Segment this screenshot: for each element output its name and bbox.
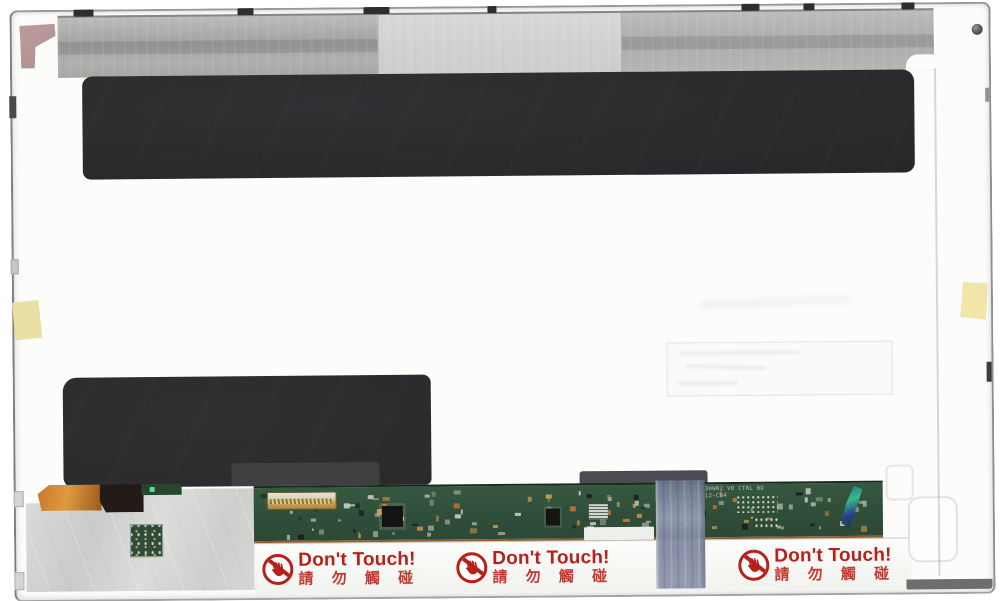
warning-text: Don't Touch! 請 勿 觸 碰 (492, 548, 610, 586)
pcb-component (312, 528, 315, 531)
flex-cable-connector (100, 484, 144, 512)
pcb-component (412, 523, 418, 526)
pcb-component (810, 502, 815, 506)
pcb-component (607, 495, 612, 497)
pcb-component (373, 531, 379, 537)
pcb-board: B173HW02 V0 CTRL BD 17B12-C04 (254, 481, 883, 545)
product-photo-lcd-panel: B173HW02 V0 CTRL BD 17B12-C04 Don't Touc… (0, 0, 1000, 601)
warning-text-zh: 請 勿 觸 碰 (298, 569, 416, 587)
warning-text-zh: 請 勿 觸 碰 (774, 565, 892, 583)
pcb-component (572, 526, 576, 529)
pcb-component (353, 529, 356, 533)
bottom-right-edge-strip (906, 579, 992, 590)
pcb-component (587, 494, 591, 499)
pcb-component (383, 497, 390, 501)
pcb-component (742, 524, 748, 530)
pcb-component (311, 519, 316, 522)
warning-text-zh: 請 勿 觸 碰 (492, 568, 610, 586)
pcb-component (319, 529, 324, 534)
faint-print-line (679, 350, 799, 355)
pcb-component (795, 492, 802, 495)
warning-label-2: Don't Touch! 請 勿 觸 碰 (456, 544, 610, 589)
flex-cable (38, 484, 102, 511)
pad-texture (82, 69, 915, 179)
blue-tape (656, 480, 706, 588)
pcb-component (338, 519, 341, 521)
yellow-tape-right (960, 282, 988, 320)
top-edge-tab (487, 6, 496, 13)
ic-chip-small (546, 508, 560, 525)
pcb-component (472, 522, 477, 525)
pcb-component (804, 498, 807, 502)
pcb-component (299, 517, 302, 520)
band-corner-notch (906, 54, 934, 71)
right-edge-tab (987, 362, 992, 382)
band-texture (58, 10, 934, 78)
bottom-label-strip: Don't Touch! 請 勿 觸 碰 Don't Touch! 請 勿 觸 … (254, 537, 911, 594)
top-adhesive-pad (82, 69, 915, 179)
pcb-component (427, 533, 431, 537)
pcb-component (569, 507, 575, 512)
connector-pins (270, 498, 332, 504)
frame-cutout-large (908, 496, 959, 562)
pcb-component (635, 500, 639, 505)
pin-header-small (754, 517, 780, 529)
top-edge-tab (901, 2, 914, 9)
pcb-component (819, 526, 821, 529)
faint-print-line (686, 364, 766, 370)
pcb-component (712, 505, 717, 510)
pcb-component (298, 535, 304, 540)
pcb-component (515, 513, 521, 516)
pcb-component (460, 510, 463, 514)
pcb-component (454, 514, 461, 518)
pcb-components (254, 483, 883, 541)
pcb-component (590, 523, 595, 525)
left-edge-tab (11, 259, 19, 274)
pcb-component (816, 498, 822, 502)
pcb-component (445, 519, 450, 525)
pcb-component (289, 510, 293, 514)
no-touch-icon (456, 552, 487, 583)
pcb-component (432, 492, 436, 497)
pcb-component (640, 507, 645, 509)
pcb-component (367, 495, 374, 500)
top-edge-tab (363, 7, 389, 14)
tape-streaks (656, 480, 706, 588)
silkscreen-box (589, 504, 608, 519)
pcb-component (750, 516, 753, 519)
pcb-component (827, 498, 831, 503)
pcb-sliver (142, 484, 182, 495)
pcb-component (454, 491, 461, 495)
pcb-component (470, 528, 476, 533)
screw-hole (972, 24, 983, 35)
left-edge-tab (14, 572, 24, 590)
pcb-component (492, 525, 497, 528)
yellow-tape-left (12, 300, 42, 340)
pcb-component (454, 503, 461, 508)
pcb-component (810, 523, 815, 526)
pcb-component (805, 488, 811, 494)
warning-text: Don't Touch! 請 勿 觸 碰 (298, 549, 416, 587)
pin-header (736, 495, 778, 513)
pcb-component (359, 511, 364, 516)
pcb-component (578, 491, 580, 496)
pcb-component (287, 534, 290, 540)
pcb-component (527, 497, 532, 502)
pcb-component (428, 525, 434, 531)
pcb-component (430, 500, 434, 506)
top-edge-tab (73, 10, 93, 17)
pcb-component (546, 494, 552, 498)
top-edge-tab (237, 8, 253, 15)
pcb-component (712, 526, 717, 530)
faint-print-line (678, 381, 738, 386)
warning-text-en: Don't Touch! (492, 548, 610, 569)
pcb-component (859, 501, 865, 504)
warning-text-en: Don't Touch! (298, 549, 416, 570)
warning-text-en: Don't Touch! (774, 545, 892, 566)
pcb-component (498, 532, 504, 535)
pcb-component (344, 503, 351, 509)
no-touch-icon (738, 549, 769, 580)
ic-chip-large (382, 506, 403, 527)
top-edge-tab (741, 4, 759, 11)
right-edge-tab (985, 88, 989, 102)
warning-label-3: Don't Touch! 請 勿 觸 碰 (738, 542, 892, 587)
pcb-component (825, 511, 828, 516)
pcb-component (781, 527, 785, 530)
pcb-white-label (584, 527, 654, 541)
left-edge-tab (14, 491, 24, 507)
pcb-component (358, 532, 361, 538)
pcb-component (633, 494, 638, 500)
pcb-component (608, 497, 612, 501)
pcb-component (623, 519, 630, 521)
pcb-component (436, 516, 439, 522)
pcb-component (356, 503, 360, 508)
pcb-component (600, 519, 606, 525)
lvds-connector (267, 491, 337, 510)
pcb-component (425, 495, 430, 498)
pcb-component (718, 501, 724, 505)
pcb-component (392, 531, 396, 535)
led-dot (150, 487, 155, 492)
frame-cutout-small (885, 464, 913, 500)
left-edge-tab (9, 96, 16, 118)
adhesive-tape-sheen (231, 462, 379, 486)
pcb-component (861, 526, 867, 532)
pcb-component (789, 504, 793, 509)
no-touch-icon (262, 553, 293, 584)
pcb-component (577, 520, 580, 525)
pcb-component (636, 514, 642, 518)
pcb-component (417, 526, 423, 530)
warning-text: Don't Touch! 請 勿 觸 碰 (774, 545, 892, 583)
faint-label-outline (666, 341, 892, 397)
pcb-component (616, 501, 619, 506)
shield-window-pcb (130, 524, 163, 557)
top-metal-band (58, 8, 935, 78)
top-edge-tab (803, 3, 814, 10)
lcd-panel-back: B173HW02 V0 CTRL BD 17B12-C04 Don't Touc… (0, 0, 1000, 601)
warning-label-1: Don't Touch! 請 勿 觸 碰 (262, 546, 416, 591)
pcb-component (744, 519, 749, 522)
